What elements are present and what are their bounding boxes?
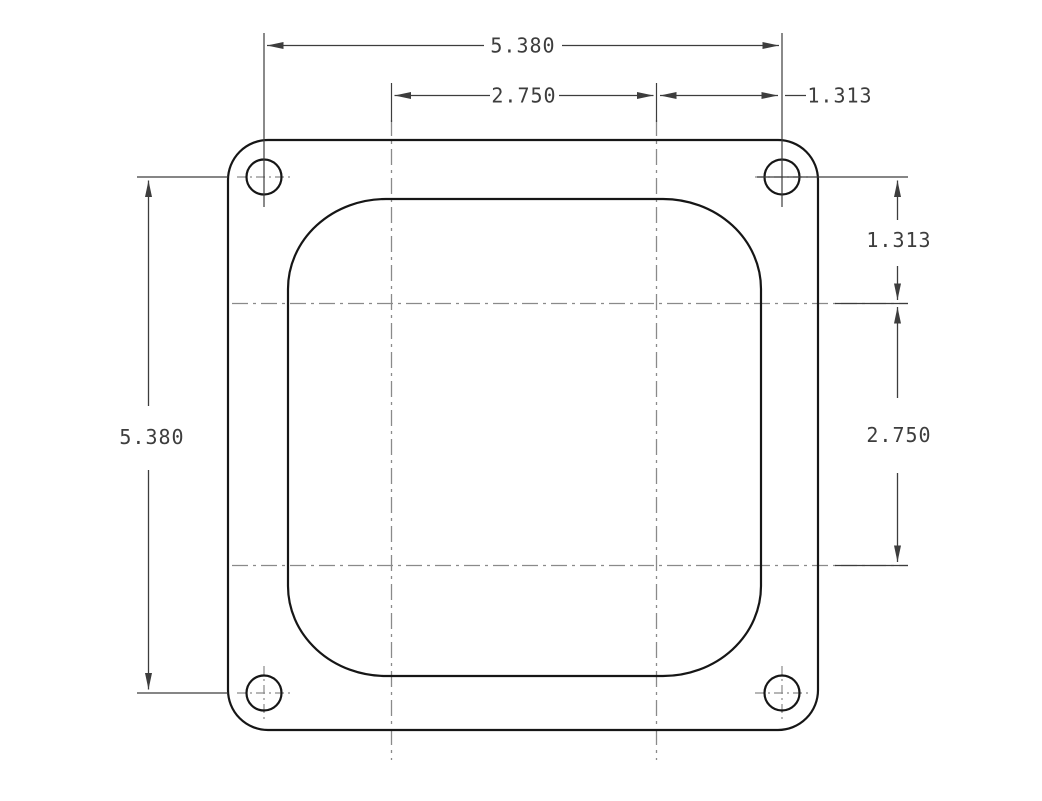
- dimension-labels: 5.380 2.750 1.313 1.313 2.750 5.380: [119, 34, 931, 450]
- dim-label-right-bore-spacing: 2.750: [866, 423, 931, 447]
- extension-lines: [137, 33, 908, 693]
- drawing-page: 5.380 2.750 1.313 1.313 2.750 5.380: [0, 0, 1042, 801]
- technical-drawing-canvas: 5.380 2.750 1.313 1.313 2.750 5.380: [0, 0, 1042, 801]
- dim-label-right-top-offset: 1.313: [866, 228, 931, 252]
- bolt-hole-centermarks: [237, 177, 809, 720]
- centerlines: [232, 120, 908, 760]
- inner-opening-outline: [288, 199, 761, 676]
- dim-label-top-bore-spacing: 2.750: [491, 84, 556, 108]
- dim-label-left-overall: 5.380: [119, 425, 184, 449]
- part-geometry: [228, 140, 818, 730]
- dim-label-top-right-offset: 1.313: [807, 84, 872, 108]
- dim-label-top-overall: 5.380: [490, 34, 555, 58]
- flange-outline: [228, 140, 818, 730]
- dimension-lines: [149, 46, 898, 690]
